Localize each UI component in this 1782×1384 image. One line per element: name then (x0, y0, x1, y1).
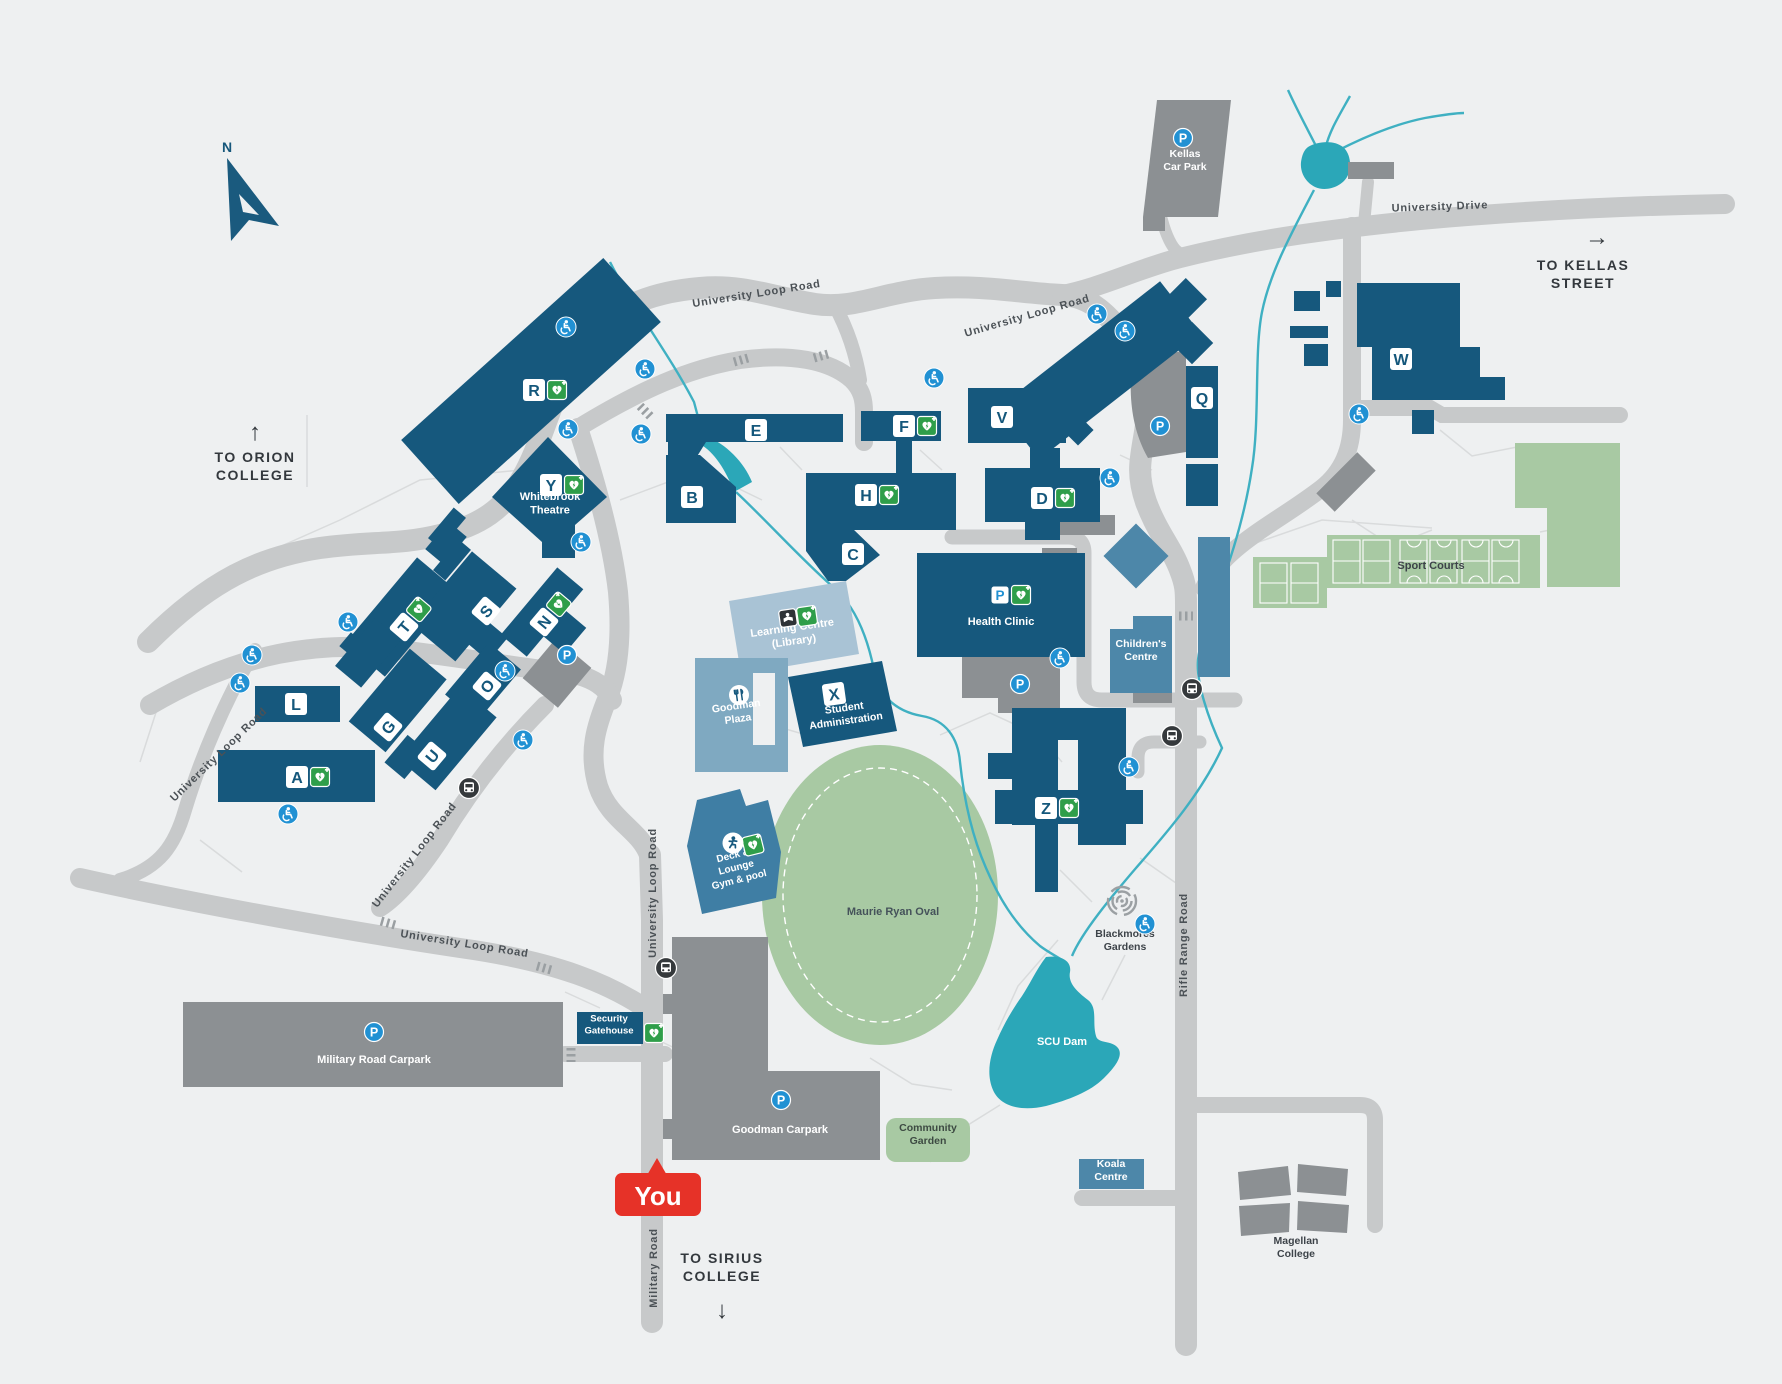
place-label-magellan-college: MagellanCollege (1274, 1235, 1319, 1260)
place-label-line: College (1277, 1248, 1315, 1260)
building-letter: Q (1196, 391, 1208, 408)
road-label: Military Road (648, 1228, 660, 1307)
place-label-security-gatehouse: SecurityGatehouse (584, 1013, 633, 1036)
place-label-line: Goodman Carpark (732, 1124, 829, 1136)
direction-kellas-line2: STREET (1551, 275, 1615, 291)
direction-orion-line1: TO ORION (215, 449, 296, 465)
building-letter: A (291, 770, 303, 787)
building-letter: F (899, 419, 909, 436)
east-bar-building (1198, 537, 1230, 677)
place-label-line: Kellas (1170, 148, 1201, 160)
road-label: Rifle Range Road (1178, 893, 1190, 997)
wheelchair-accessible-icon (556, 317, 576, 337)
direction-sirius-line2: COLLEGE (683, 1268, 761, 1284)
place-label-line: Children's (1116, 638, 1167, 650)
campus-map-svg: N ↑ TO ORION COLLEGE → TO KELLAS STREET … (0, 0, 1782, 1384)
building-letter: E (751, 423, 762, 440)
right-arrow-icon: → (1585, 224, 1609, 251)
place-label-line: Gatehouse (584, 1025, 633, 1036)
wheelchair-accessible-icon (1115, 321, 1135, 341)
building-letter: D (1036, 491, 1048, 508)
place-label-line: Military Road Carpark (317, 1054, 432, 1066)
parking-letter: P (1179, 132, 1187, 146)
place-label-line: Car Park (1163, 161, 1206, 173)
parking-icon: P (1011, 675, 1030, 694)
bus-stop-icon (1162, 726, 1183, 747)
building-W (1357, 283, 1460, 347)
building-badge-R: R (523, 379, 567, 401)
parking-icon: P (365, 1023, 384, 1042)
defibrillator-icon (1012, 586, 1031, 605)
building-Q (1186, 366, 1218, 458)
pond (1301, 142, 1350, 189)
place-label-line: SCU Dam (1037, 1036, 1087, 1048)
place-label-line: Centre (1124, 651, 1157, 663)
building-badge-F: F (893, 415, 937, 437)
bus-stop-icon (656, 958, 677, 979)
down-arrow-icon: ↓ (716, 1297, 728, 1324)
place-label-maurie-ryan-oval: Maurie Ryan Oval (847, 906, 939, 918)
direction-orion-line2: COLLEGE (216, 467, 294, 483)
place-label-goodman-carpark: Goodman Carpark (732, 1124, 829, 1136)
defibrillator-icon (918, 417, 937, 436)
wheelchair-accessible-icon (631, 424, 651, 444)
wheelchair-accessible-icon (1100, 468, 1120, 488)
building-badge-W: W (1390, 348, 1412, 370)
building-letter: Y (546, 478, 557, 495)
defibrillator-icon (741, 833, 764, 856)
building-badge-Q: Q (1191, 387, 1213, 409)
parking-letter: P (563, 649, 571, 663)
place-label-health-clinic: Health Clinic (968, 616, 1035, 628)
parking-icon: P (772, 1091, 791, 1110)
wheelchair-accessible-icon (338, 612, 358, 632)
place-label-kellas-car-park: KellasCar Park (1163, 148, 1206, 173)
building-badge-A: A (286, 766, 330, 788)
building-badge-E: E (745, 419, 767, 441)
wheelchair-accessible-icon (513, 730, 533, 750)
parking-letter: P (777, 1094, 785, 1108)
up-arrow-icon: ↑ (249, 419, 261, 446)
library-icon (778, 608, 797, 627)
parking-letter: P (1156, 420, 1164, 434)
place-label-line: Garden (910, 1135, 947, 1147)
building-badge-Z: Z (1035, 797, 1079, 819)
wheelchair-accessible-icon (1135, 914, 1155, 934)
building-badge-L: L (285, 693, 307, 715)
bus-stop-icon (459, 778, 480, 799)
magellan-building (1297, 1164, 1348, 1196)
place-label-line: Magellan (1274, 1235, 1319, 1247)
building-letter: C (847, 547, 859, 564)
parking-icon: P (1174, 129, 1193, 148)
wheelchair-accessible-icon (558, 419, 578, 439)
parking-letter: P (1016, 678, 1024, 692)
parking-icon: P (558, 646, 577, 665)
building-badge-X: X (822, 682, 847, 707)
defibrillator-icon (548, 381, 567, 400)
building-letter: B (686, 490, 698, 507)
wheelchair-accessible-icon (495, 661, 515, 681)
wheelchair-accessible-icon (635, 359, 655, 379)
campus-map: N ↑ TO ORION COLLEGE → TO KELLAS STREET … (0, 0, 1782, 1384)
place-label-line: Gardens (1104, 941, 1147, 953)
road-label: University Loop Road (647, 828, 659, 958)
building-badge-Y: Y (540, 474, 584, 496)
building-badge-V: V (991, 406, 1013, 428)
health-clinic-building (917, 553, 1085, 657)
wheelchair-accessible-icon (571, 532, 591, 552)
parking-badge-icon: P (992, 587, 1009, 604)
wheelchair-accessible-icon (1050, 648, 1070, 668)
compass-n-label: N (222, 139, 232, 155)
direction-kellas-line1: TO KELLAS (1537, 257, 1630, 273)
wheelchair-accessible-icon (1119, 757, 1139, 777)
place-label-line: Theatre (530, 505, 570, 517)
wheelchair-accessible-icon (924, 368, 944, 388)
wheelchair-accessible-icon (278, 804, 298, 824)
building-letter: W (1393, 352, 1409, 369)
defibrillator-icon (1060, 799, 1079, 818)
defibrillator-icon (796, 605, 817, 626)
wheelchair-accessible-icon (230, 673, 250, 693)
building-letter: H (860, 488, 872, 505)
parking-icon: P (1151, 417, 1170, 436)
defibrillator-icon (565, 476, 584, 495)
building-letter: V (997, 410, 1008, 427)
parking-letter: P (370, 1026, 378, 1040)
building-letter: Z (1041, 801, 1051, 818)
defibrillator-icon (1056, 489, 1075, 508)
defibrillator-icon (311, 768, 330, 787)
place-label-line: Sport Courts (1397, 560, 1464, 572)
wheelchair-accessible-icon (1349, 404, 1369, 424)
military-road-carpark-building (183, 1002, 563, 1087)
direction-sirius-line1: TO SIRIUS (680, 1250, 763, 1266)
magellan-building (1239, 1203, 1290, 1236)
magellan-building (1238, 1166, 1291, 1200)
building-badge-D: D (1031, 487, 1075, 509)
place-label-line: Centre (1094, 1171, 1127, 1183)
place-label-line: Koala (1097, 1158, 1126, 1170)
defibrillator-icon (880, 486, 899, 505)
place-label-koala-centre: KoalaCentre (1094, 1158, 1127, 1183)
place-label-sport-courts: Sport Courts (1397, 560, 1464, 572)
w-access-road (1352, 408, 1620, 415)
place-label-scu-dam: SCU Dam (1037, 1036, 1087, 1048)
place-label-military-road-carpark: Military Road Carpark (317, 1054, 432, 1066)
you-marker-label: You (634, 1181, 681, 1211)
building-badge-H: H (855, 484, 899, 506)
place-label-line: Health Clinic (968, 616, 1035, 628)
wheelchair-accessible-icon (242, 645, 262, 665)
building-badge-C: C (842, 543, 864, 565)
place-label-line: Maurie Ryan Oval (847, 906, 939, 918)
defibrillator-icon (645, 1024, 664, 1043)
building-letter: R (528, 383, 540, 400)
magellan-building (1297, 1201, 1349, 1233)
wheelchair-accessible-icon (1087, 304, 1107, 324)
building-letter: L (291, 697, 301, 714)
bus-stop-icon (1182, 679, 1203, 700)
place-label-line: Security (590, 1013, 628, 1024)
place-label-line: Community (899, 1122, 957, 1134)
parking-letter: P (995, 588, 1004, 603)
building-badge-B: B (681, 486, 703, 508)
